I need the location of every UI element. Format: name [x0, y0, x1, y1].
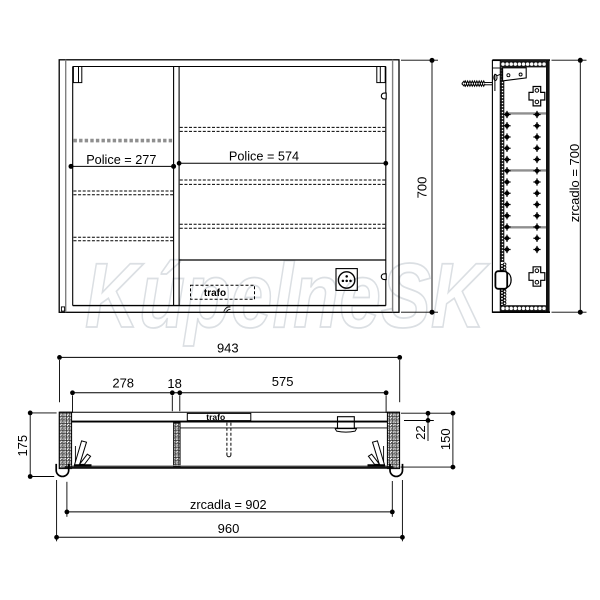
svg-text:150: 150 [438, 428, 453, 450]
svg-text:zrcadla = 902: zrcadla = 902 [190, 498, 267, 512]
svg-text:22: 22 [413, 425, 428, 439]
svg-text:trafo: trafo [206, 412, 225, 422]
svg-text:943: 943 [217, 341, 239, 356]
svg-text:trafo: trafo [204, 288, 226, 299]
svg-text:960: 960 [218, 521, 240, 536]
svg-text:575: 575 [272, 374, 294, 389]
svg-text:Police = 574: Police = 574 [229, 149, 299, 163]
svg-text:175: 175 [15, 435, 30, 457]
svg-text:Police = 277: Police = 277 [86, 153, 156, 167]
svg-text:zrcadlo = 700: zrcadlo = 700 [567, 144, 582, 222]
svg-text:18: 18 [167, 376, 181, 391]
svg-text:700: 700 [414, 177, 429, 199]
svg-text:278: 278 [112, 376, 134, 391]
